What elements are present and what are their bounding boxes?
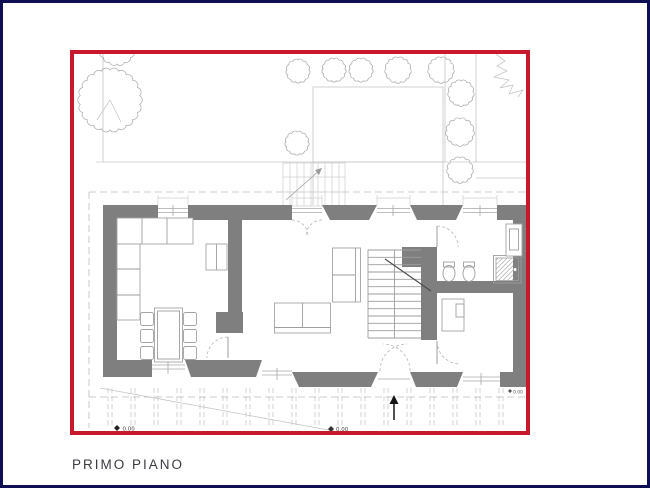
chair: [184, 347, 197, 360]
wall-segment: [103, 360, 152, 377]
wall-segment: [500, 372, 527, 387]
wall-segment: [292, 372, 378, 387]
dining-set: [141, 308, 197, 362]
wall-pier: [216, 312, 243, 333]
chair: [184, 313, 197, 326]
bedroom-furniture: [442, 299, 464, 331]
kitchen-counter: [117, 218, 193, 244]
wall-interior: [421, 247, 437, 340]
wall-segment: [410, 205, 463, 220]
wall-left: [103, 205, 117, 377]
kitchen-counter-side: [117, 244, 140, 320]
chair: [141, 330, 154, 343]
wall-interior: [228, 205, 242, 312]
wall-segment: [410, 372, 463, 387]
floor-title: PRIMO PIANO: [72, 457, 184, 472]
page: 0.00 0.00 0.00 PRIMO PIANO: [0, 0, 650, 488]
floor-plan-drawing: 0.00 0.00 0.00 PRIMO PIANO: [0, 0, 650, 488]
level-value: 0.00: [513, 390, 523, 396]
wall-segment: [185, 360, 262, 377]
shower-drain: [513, 268, 517, 272]
chair: [184, 330, 197, 343]
wall-segment: [322, 205, 377, 220]
chair: [141, 313, 154, 326]
dining-table: [155, 308, 183, 362]
chair: [141, 347, 154, 360]
canvas-background: [0, 0, 650, 488]
